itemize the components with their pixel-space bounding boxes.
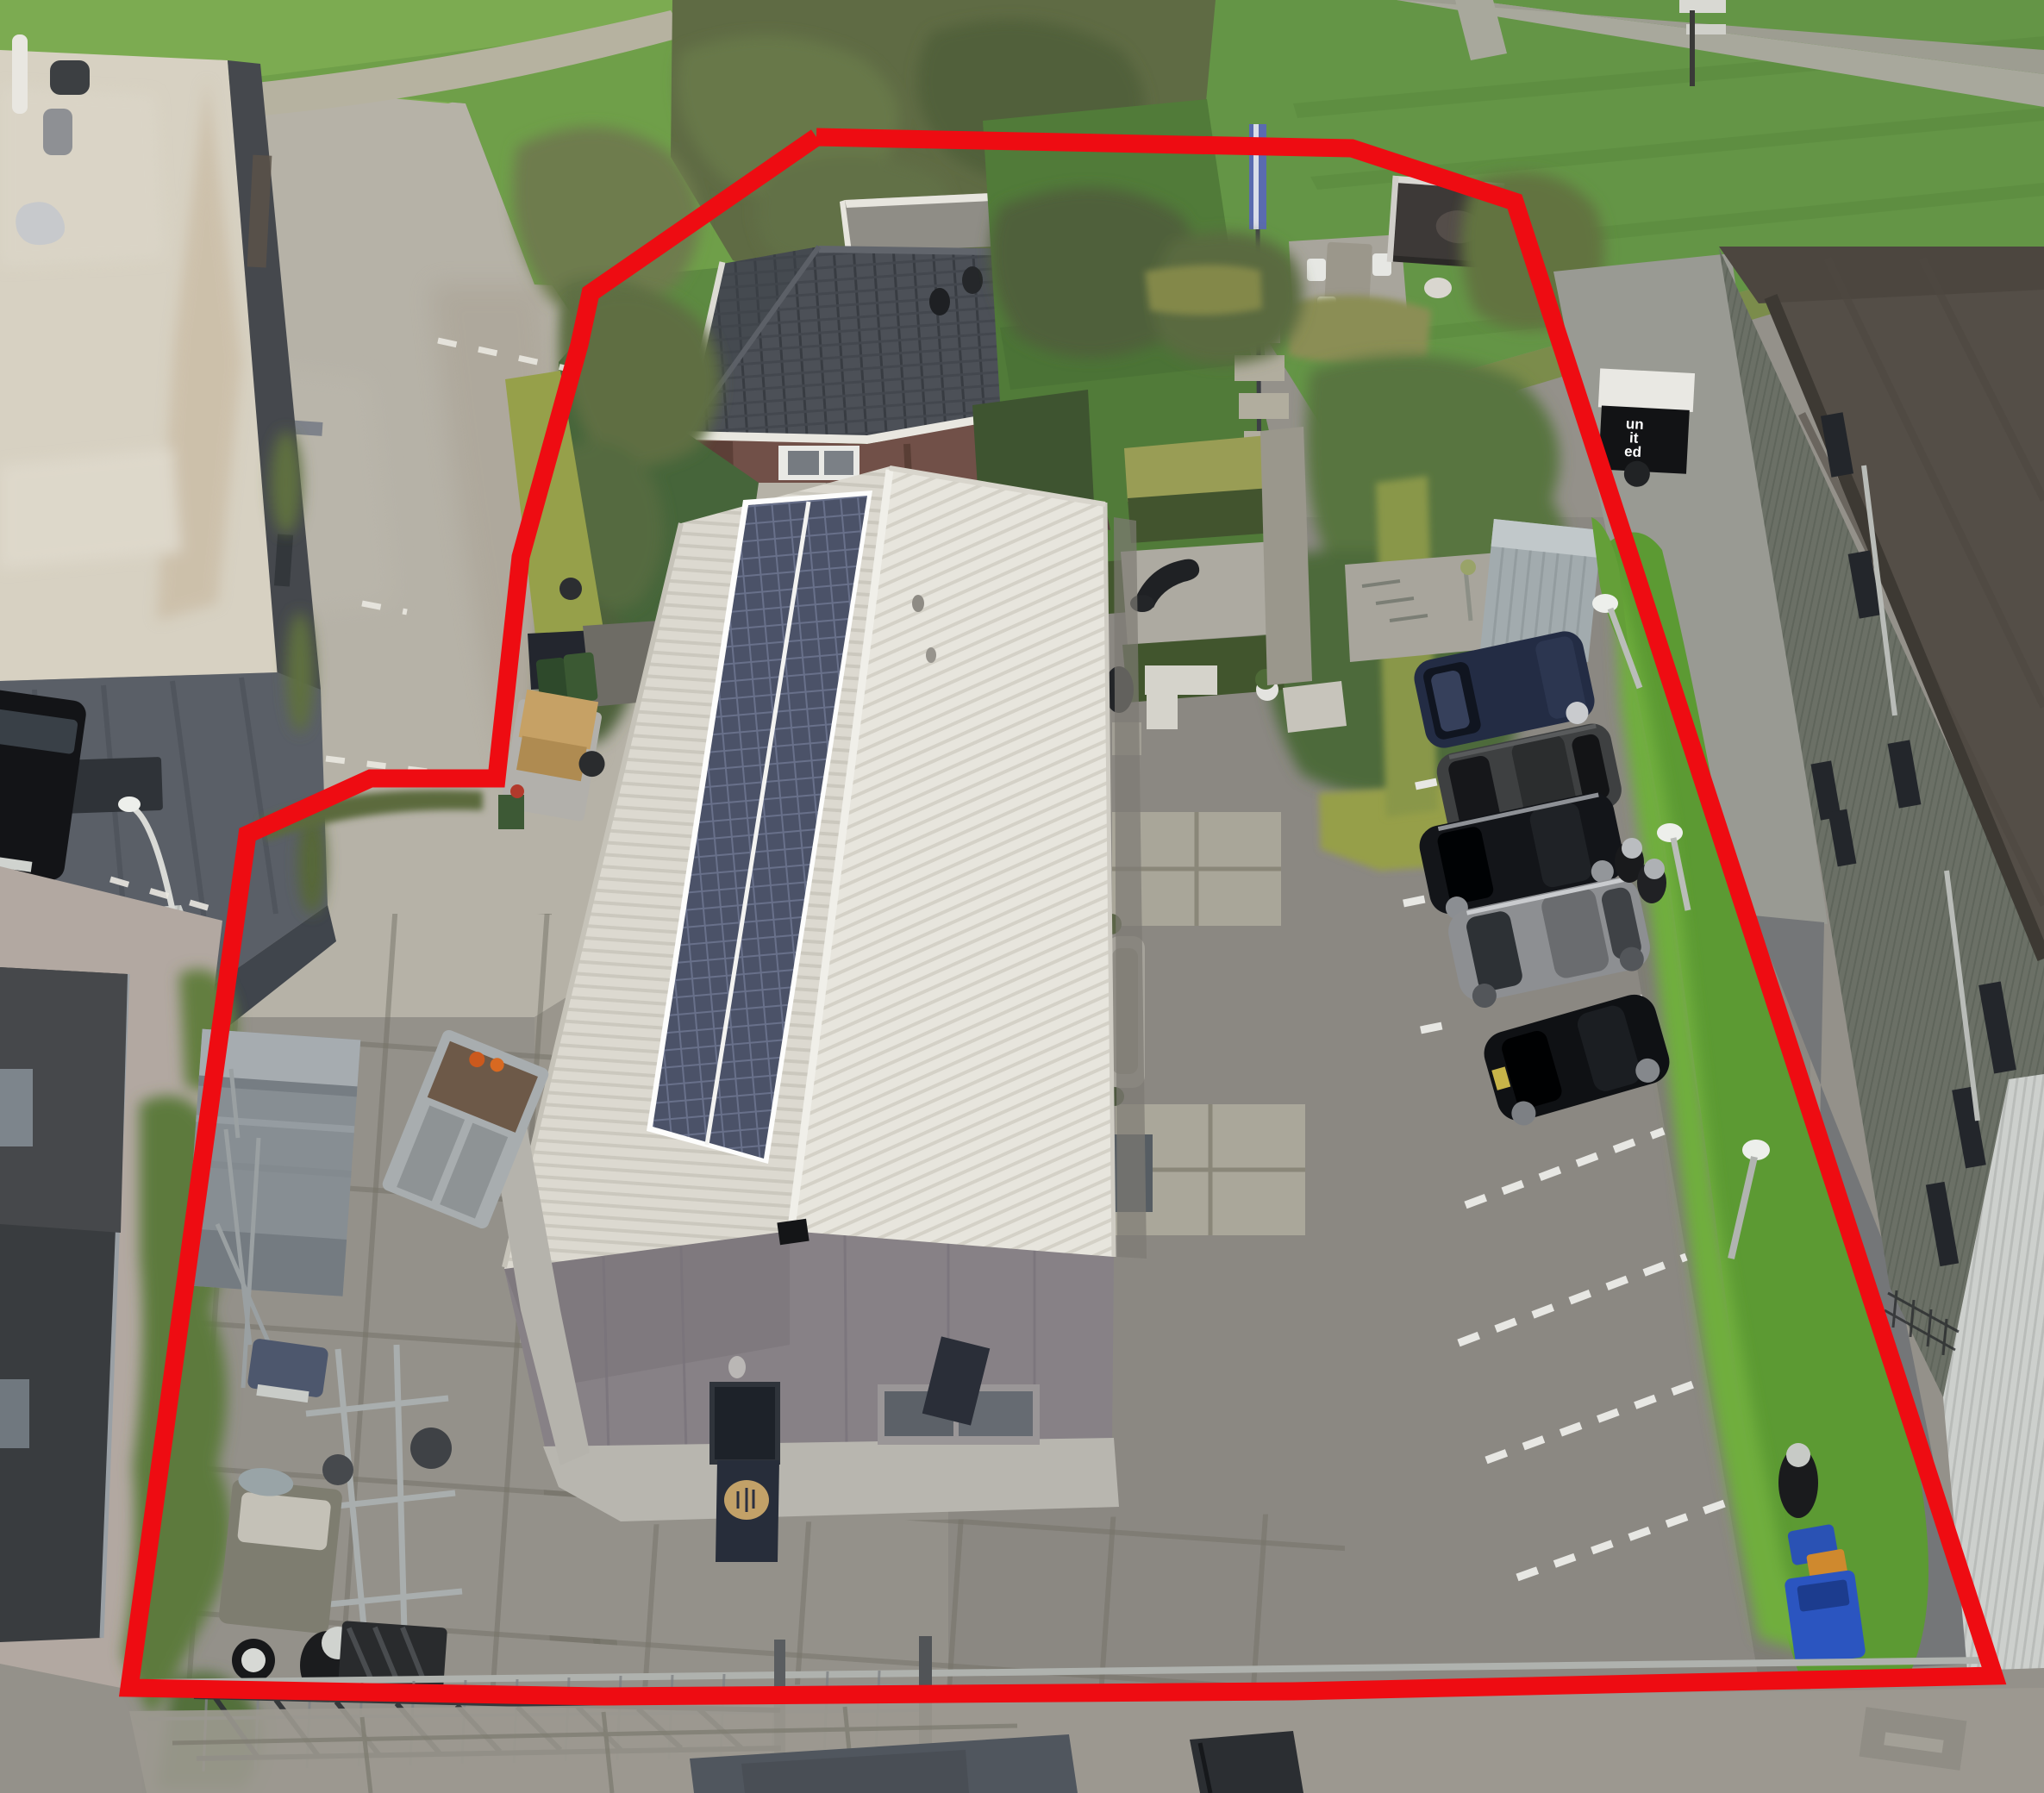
svg-text:ed: ed <box>1624 443 1642 460</box>
